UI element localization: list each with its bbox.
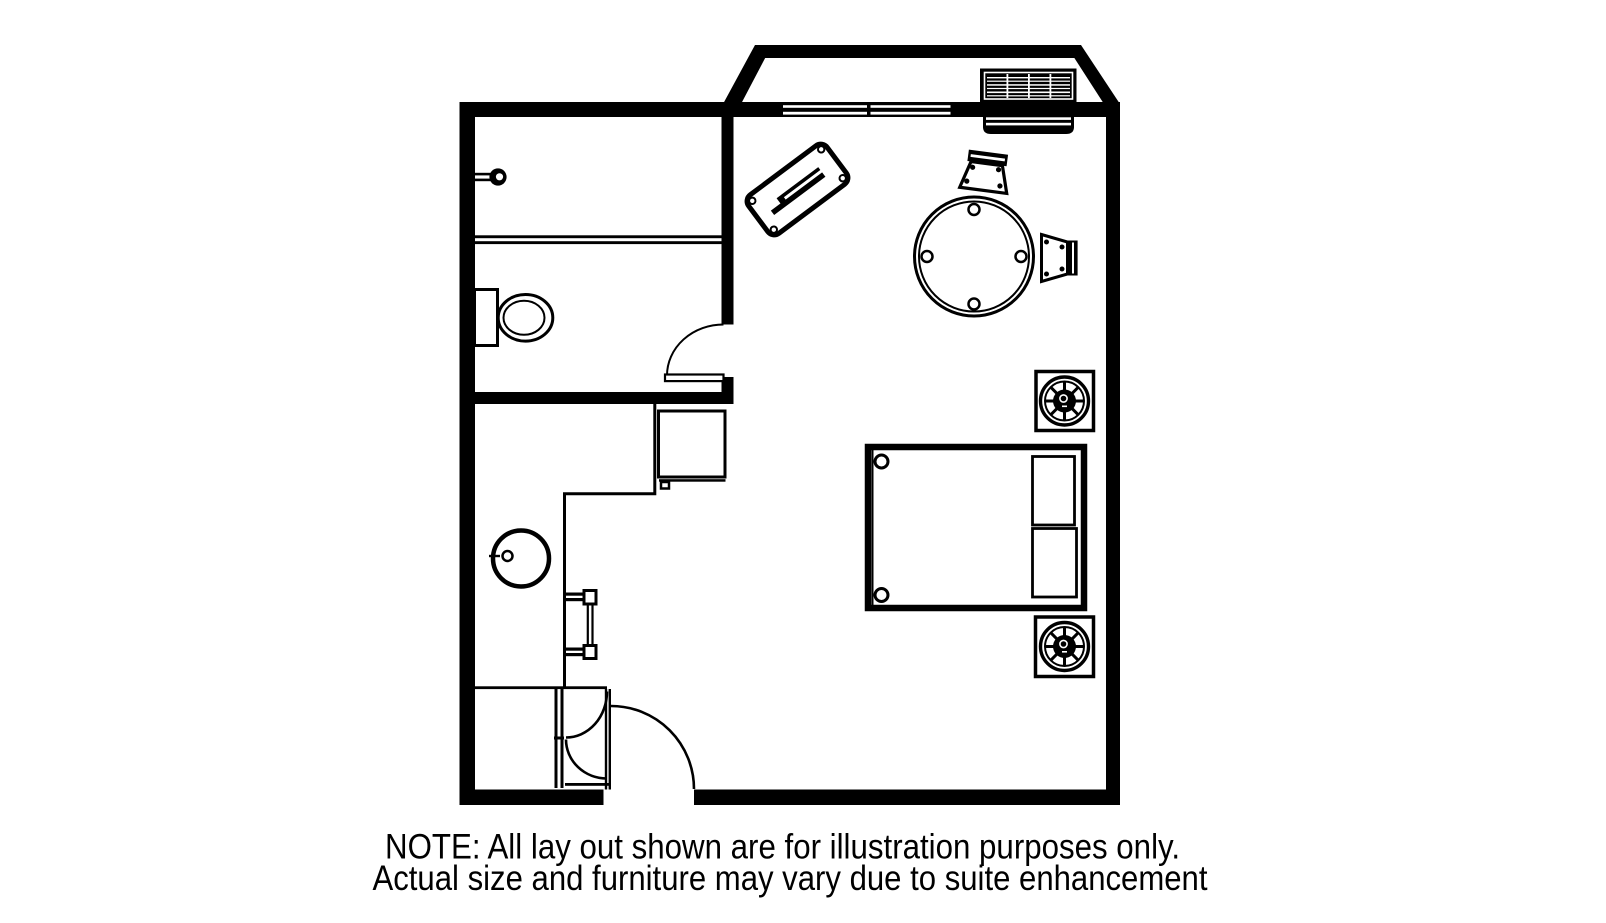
- svg-text:Actual size and furniture may: Actual size and furniture may vary due t…: [373, 859, 1208, 898]
